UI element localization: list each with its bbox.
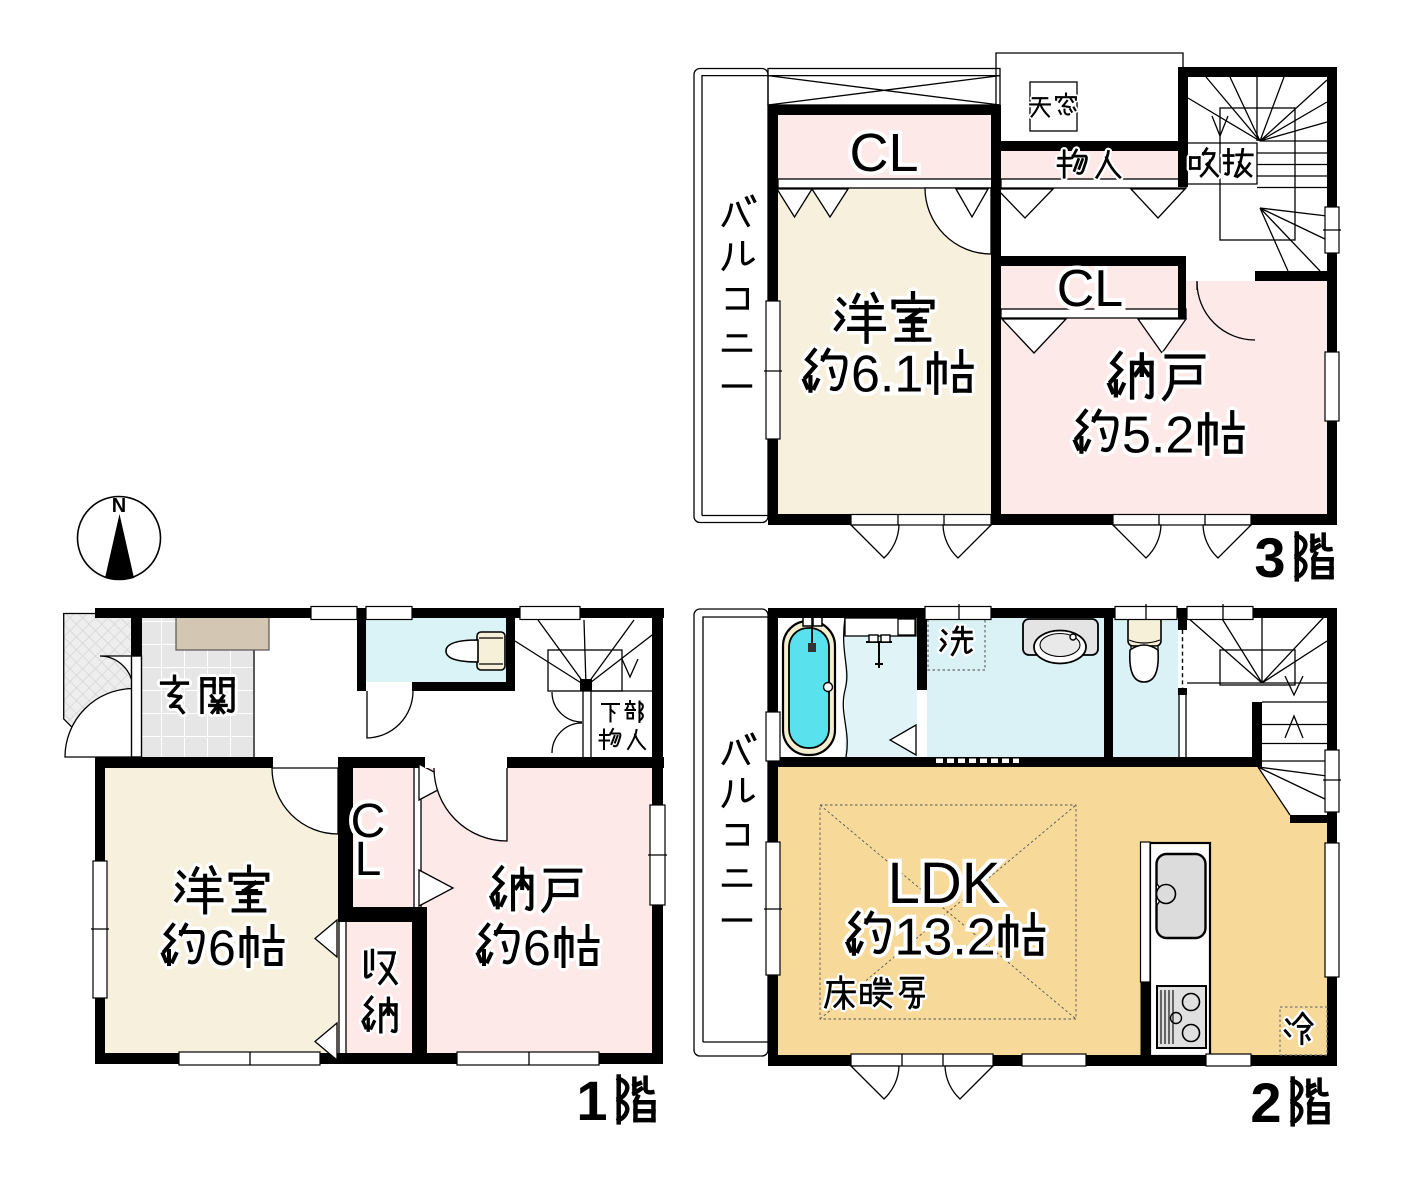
svg-text:6.1: 6.1 bbox=[851, 346, 923, 404]
svg-text:L: L bbox=[355, 833, 382, 886]
svg-text:3: 3 bbox=[1254, 526, 1285, 589]
svg-text:6: 6 bbox=[208, 920, 236, 976]
svg-text:N: N bbox=[112, 495, 126, 517]
svg-text:CL: CL bbox=[849, 123, 918, 183]
svg-text:13.2: 13.2 bbox=[895, 909, 996, 967]
svg-text:LDK: LDK bbox=[888, 851, 1001, 916]
svg-text:2: 2 bbox=[1250, 1071, 1281, 1134]
svg-text:6: 6 bbox=[523, 920, 551, 976]
svg-text:CL: CL bbox=[1057, 260, 1123, 318]
svg-text:1: 1 bbox=[576, 1069, 607, 1132]
svg-text:5.2: 5.2 bbox=[1122, 407, 1194, 465]
